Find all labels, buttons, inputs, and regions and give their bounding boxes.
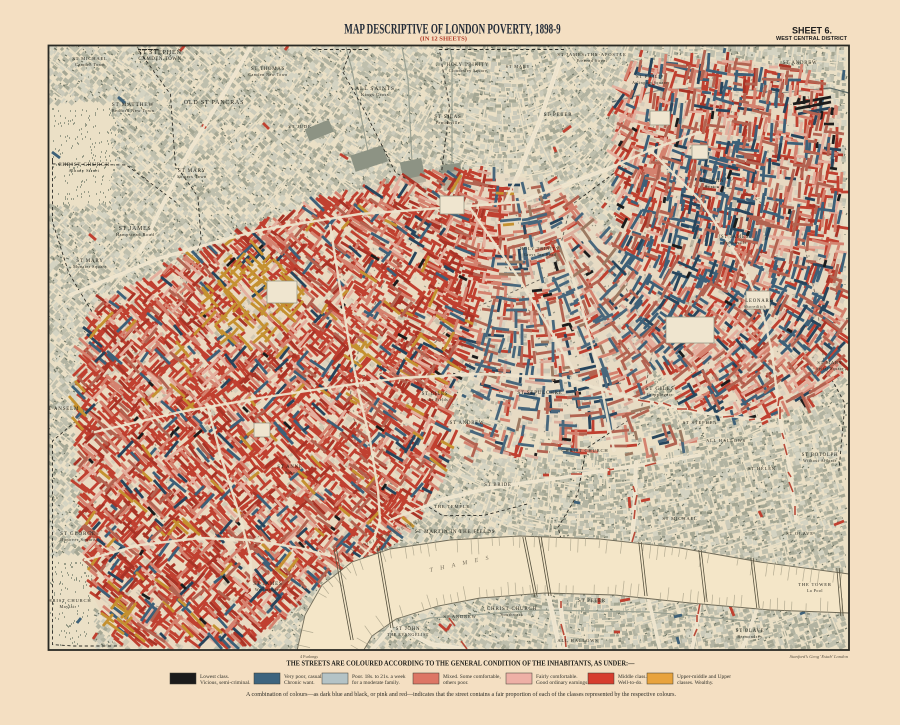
svg-text:Good ordinary earnings.: Good ordinary earnings. <box>536 680 589 686</box>
svg-text:ST JUDE: ST JUDE <box>288 124 311 129</box>
svg-text:ALL HALLOWS: ALL HALLOWS <box>557 638 598 643</box>
svg-text:Southwark: Southwark <box>501 612 524 617</box>
svg-text:THE STREETS ARE COLOURED ACCOR: THE STREETS ARE COLOURED ACCORDING TO TH… <box>287 660 636 668</box>
svg-text:Westminster: Westminster <box>255 587 281 592</box>
svg-text:ST ANDREW: ST ANDREW <box>443 614 477 619</box>
svg-text:in the Fields: in the Fields <box>422 397 448 402</box>
svg-text:Pentonville: Pentonville <box>723 240 747 245</box>
svg-text:Camden Town: Camden Town <box>75 62 105 67</box>
svg-text:Bermondsey: Bermondsey <box>737 634 762 639</box>
svg-text:ST PETER: ST PETER <box>578 599 606 604</box>
svg-text:Vicious, semi-criminal.: Vicious, semi-criminal. <box>200 680 250 686</box>
svg-text:ST MICHAEL: ST MICHAEL <box>662 516 697 521</box>
svg-text:Grays Inn Road: Grays Inn Road <box>524 252 556 257</box>
svg-text:for a moderate family.: for a moderate family. <box>352 679 400 686</box>
svg-text:Hampstead Road: Hampstead Road <box>116 232 155 237</box>
svg-text:ST PHILIP: ST PHILIP <box>636 74 664 79</box>
svg-text:Cloudesley Square: Cloudesley Square <box>449 68 488 73</box>
svg-text:ST ANDREW: ST ANDREW <box>450 421 485 426</box>
svg-text:Prebend Street: Prebend Street <box>577 58 608 63</box>
svg-text:OLD ST PANCRAS: OLD ST PANCRAS <box>184 100 245 106</box>
svg-text:ST SEPULCHRE: ST SEPULCHRE <box>517 391 562 396</box>
svg-text:Stanford’s Geog’ Estab’ London: Stanford’s Geog’ Estab’ London <box>790 654 849 659</box>
svg-text:La Pool: La Pool <box>807 588 823 593</box>
svg-text:Bedford New Town: Bedford New Town <box>112 108 155 113</box>
svg-text:Well-to-do.: Well-to-do. <box>618 680 643 686</box>
svg-text:ST MARY: ST MARY <box>817 360 843 365</box>
svg-text:Albany Street: Albany Street <box>69 168 100 173</box>
svg-text:THE TOWER: THE TOWER <box>798 582 832 587</box>
svg-text:Mixed. Some comfortable,: Mixed. Some comfortable, <box>443 673 501 680</box>
svg-text:THE EVANGELIST: THE EVANGELIST <box>387 632 429 637</box>
svg-text:Munster Square: Munster Square <box>73 264 107 269</box>
svg-text:HOLY TRINITY: HOLY TRINITY <box>520 246 560 251</box>
svg-text:SHEET 6.: SHEET 6. <box>792 26 832 36</box>
svg-text:others poor.: others poor. <box>443 680 468 686</box>
svg-text:ST HELEN: ST HELEN <box>748 466 776 471</box>
svg-text:ST JAMES-THE-APOSTLE: ST JAMES-THE-APOSTLE <box>557 52 626 57</box>
svg-text:CHRIST CHURCH: CHRIST CHURCH <box>45 598 92 603</box>
svg-text:Mayfair: Mayfair <box>60 604 77 609</box>
svg-text:(IN 12 SHEETS): (IN 12 SHEETS) <box>420 36 467 43</box>
svg-text:Hanover Square: Hanover Square <box>60 537 95 542</box>
svg-text:Pentonville: Pentonville <box>436 120 461 125</box>
svg-text:ST BRIDE: ST BRIDE <box>484 483 512 488</box>
svg-text:Camden New Town: Camden New Town <box>248 72 287 77</box>
svg-text:Hoxton: Hoxton <box>705 184 720 189</box>
svg-text:CAMDEN TOWN: CAMDEN TOWN <box>138 57 181 62</box>
svg-text:THE TEMPLE: THE TEMPLE <box>434 504 470 509</box>
svg-text:A combination of colours—as da: A combination of colours—as dark blue an… <box>246 691 677 698</box>
svg-text:MAP DESCRIPTIVE OF LONDON POVE: MAP DESCRIPTIVE OF LONDON POVERTY, 1898-… <box>344 20 560 37</box>
svg-text:CHRIST CHURCH: CHRIST CHURCH <box>562 448 609 453</box>
svg-text:Arlington Square: Arlington Square <box>632 80 668 85</box>
svg-text:4 Furlongs: 4 Furlongs <box>300 654 318 659</box>
svg-text:Chronic want.: Chronic want. <box>284 680 315 686</box>
svg-text:WEST CENTRAL DISTRICT: WEST CENTRAL DISTRICT <box>776 36 848 42</box>
svg-text:classes. Wealthy.: classes. Wealthy. <box>677 680 713 686</box>
svg-text:Soho: Soho <box>285 470 296 475</box>
svg-text:ST ANDREW: ST ANDREW <box>783 61 818 66</box>
svg-text:ST STEPHEN: ST STEPHEN <box>138 49 182 56</box>
svg-text:ST STEPHEN: ST STEPHEN <box>683 420 718 425</box>
svg-text:Kings Cross: Kings Cross <box>361 92 389 97</box>
svg-text:ST MARTIN IN THE FIELDS: ST MARTIN IN THE FIELDS <box>415 530 495 535</box>
svg-text:Fairly comfortable.: Fairly comfortable. <box>536 673 578 680</box>
svg-text:ST MARY: ST MARY <box>506 64 531 69</box>
svg-text:ST MICHAEL: ST MICHAEL <box>72 56 107 61</box>
svg-text:Without Aldgate: Without Aldgate <box>803 458 837 463</box>
svg-text:Somers Town: Somers Town <box>177 174 207 179</box>
svg-text:ALL HALLOWS: ALL HALLOWS <box>706 438 746 443</box>
svg-text:Spital Square: Spital Square <box>816 366 844 371</box>
svg-text:ST PETER: ST PETER <box>544 113 573 118</box>
svg-text:Shoreditch: Shoreditch <box>744 304 766 309</box>
svg-text:ST ANSELM: ST ANSELM <box>45 407 79 412</box>
svg-text:Cripplegate: Cripplegate <box>647 392 673 397</box>
svg-text:ST OLAVE: ST OLAVE <box>786 531 814 536</box>
